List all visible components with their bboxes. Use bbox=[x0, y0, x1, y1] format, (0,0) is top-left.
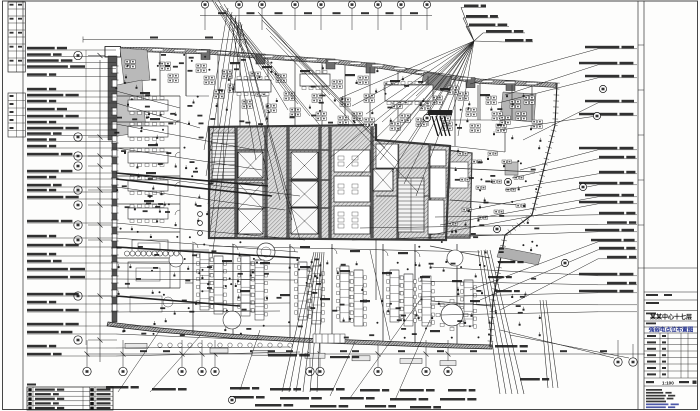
svg-text:1:100: 1:100 bbox=[662, 381, 674, 386]
svg-text:某某中心十七层: 某某中心十七层 bbox=[650, 313, 692, 321]
svg-text:强弱电点位布置图: 强弱电点位布置图 bbox=[649, 326, 694, 334]
